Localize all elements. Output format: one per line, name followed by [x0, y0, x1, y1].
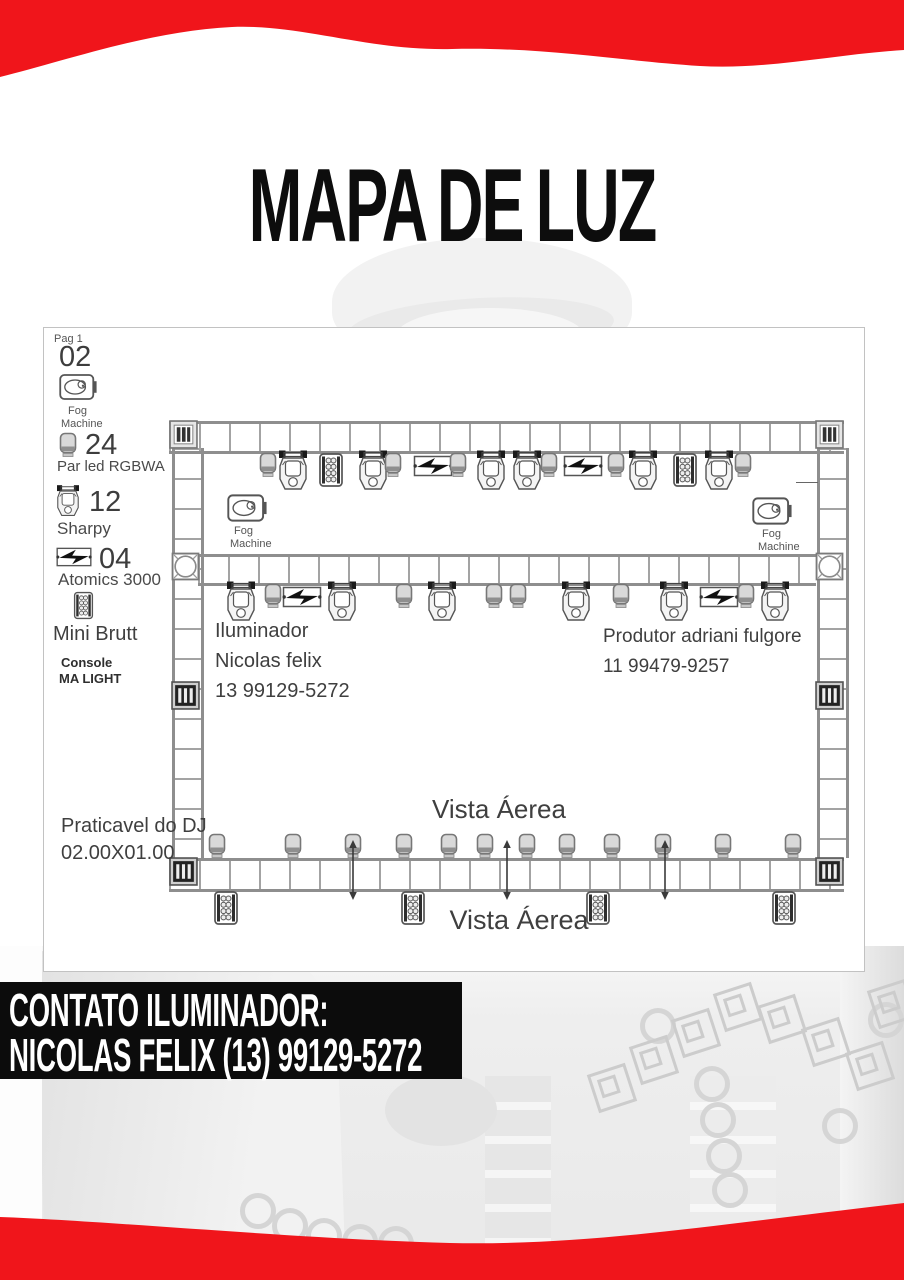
pattern-chain-ring [694, 1066, 730, 1102]
iluminador-line3: 13 99129-5272 [215, 676, 350, 706]
pattern-chain-ring [706, 1138, 742, 1174]
mh-fixture-icon [278, 449, 308, 491]
iluminador-credit: Iluminador Nicolas felix 13 99129-5272 [215, 616, 350, 706]
contact-banner: CONTATO ILUMINADOR: NICOLAS FELIX (13) 9… [0, 982, 462, 1079]
par-fixture-icon [476, 833, 494, 859]
mh-fixture-icon [659, 580, 689, 622]
par-fixture-icon [440, 833, 458, 859]
par-fixture-icon [384, 452, 402, 478]
brutt-fixture-icon [318, 452, 344, 488]
par-fixture-icon [607, 452, 625, 478]
iluminador-line2: Nicolas felix [215, 646, 350, 676]
pattern-crest [385, 1074, 497, 1146]
mh-fixture-icon [476, 449, 506, 491]
brutt-fixture-icon [400, 890, 426, 926]
stage-fog-left-label-2: Machine [230, 538, 272, 551]
rig-arrow-icon [348, 840, 358, 900]
par-fixture-icon [208, 833, 226, 859]
contact-banner-line1: CONTATO ILUMINADOR: [9, 988, 281, 1033]
bottom-red-wave [0, 1190, 904, 1280]
par-fixture-icon [734, 452, 752, 478]
par-fixture-icon [612, 583, 630, 609]
mh-fixture-icon [760, 580, 790, 622]
par-fixture-icon [264, 583, 282, 609]
brutt-fixture-icon [771, 890, 797, 926]
page-title: MAPA DE LUZ [0, 154, 904, 258]
vista-aerea-top: Vista Áerea [404, 794, 594, 825]
produtor-credit: Produtor adriani fulgore 11 99479-9257 [603, 622, 802, 682]
pattern-chain-ring [700, 1102, 736, 1138]
par-fixture-icon [485, 583, 503, 609]
vista-aerea-bottom: Vista Áerea [429, 905, 609, 936]
par-fixture-icon [784, 833, 802, 859]
stage-fog-right-label-2: Machine [758, 541, 800, 554]
pattern-greek-key [629, 1035, 679, 1085]
atomics-fixture-icon [699, 586, 739, 608]
par-fixture-icon [737, 583, 755, 609]
dj-riser-line1: Praticavel do DJ [61, 813, 207, 840]
stage-fog-right-label-1: Fog [762, 528, 781, 541]
par-fixture-icon [603, 833, 621, 859]
produtor-line1: Produtor adriani fulgore [603, 622, 802, 652]
par-fixture-icon [449, 452, 467, 478]
rig-arrow-icon [502, 840, 512, 900]
top-red-wave [0, 0, 904, 140]
par-fixture-icon [395, 833, 413, 859]
fog-machine-icon-right [752, 497, 792, 525]
atomics-fixture-icon [413, 455, 453, 477]
page-title-text: MAPA DE LUZ [249, 154, 656, 258]
light-map-panel: Pag 1 02 Fog Machine 24 Par led RGBWA 12… [43, 327, 865, 972]
pattern-greek-key [587, 1063, 637, 1113]
dj-riser-note: Praticavel do DJ 02.00X01.00 [61, 813, 207, 867]
pattern-greek-key [713, 982, 763, 1032]
produtor-line2: 11 99479-9257 [603, 652, 802, 682]
stage-fog-left-label-1: Fog [234, 525, 253, 538]
pattern-greek-key [671, 1008, 721, 1058]
par-fixture-icon [284, 833, 302, 859]
mh-fixture-icon [561, 580, 591, 622]
atomics-fixture-icon [563, 455, 603, 477]
brutt-fixture-icon [213, 890, 239, 926]
fog-machine-icon-left [227, 494, 267, 522]
iluminador-line1: Iluminador [215, 616, 350, 646]
pattern-chain-ring [822, 1108, 858, 1144]
mh-fixture-icon [628, 449, 658, 491]
par-fixture-icon [558, 833, 576, 859]
wall-tick-line [796, 482, 818, 483]
par-fixture-icon [518, 833, 536, 859]
brutt-fixture-icon [672, 452, 698, 488]
par-fixture-icon [540, 452, 558, 478]
par-fixture-icon [395, 583, 413, 609]
pattern-greek-key [757, 994, 807, 1044]
par-fixture-icon [509, 583, 527, 609]
mh-fixture-icon [704, 449, 734, 491]
mh-fixture-icon [427, 580, 457, 622]
atomics-fixture-icon [282, 586, 322, 608]
mh-fixture-icon [512, 449, 542, 491]
dj-riser-line2: 02.00X01.00 [61, 840, 207, 867]
par-fixture-icon [714, 833, 732, 859]
rig-arrow-icon [660, 840, 670, 900]
par-fixture-icon [259, 452, 277, 478]
contact-banner-line2: NICOLAS FELIX (13) 99129-5272 [9, 1033, 281, 1078]
